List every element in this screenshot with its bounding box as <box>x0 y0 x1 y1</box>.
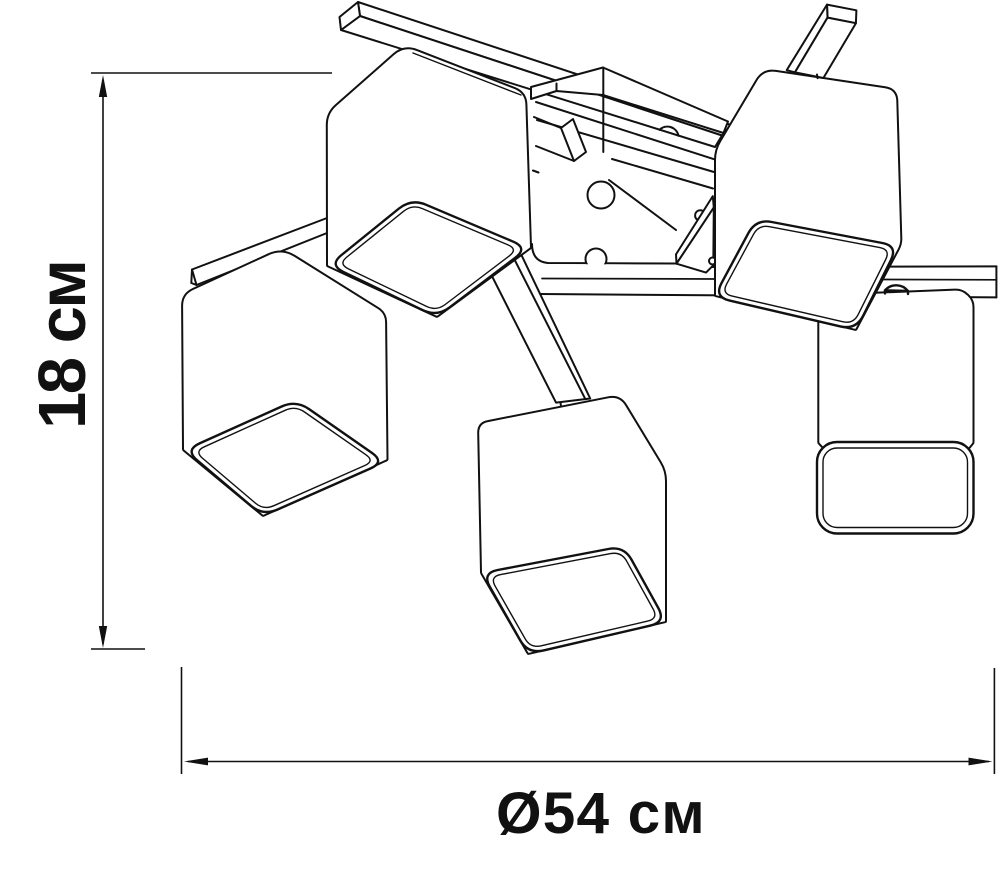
svg-text:Ø54 см: Ø54 см <box>496 781 706 846</box>
svg-text:18 см: 18 см <box>25 262 100 429</box>
